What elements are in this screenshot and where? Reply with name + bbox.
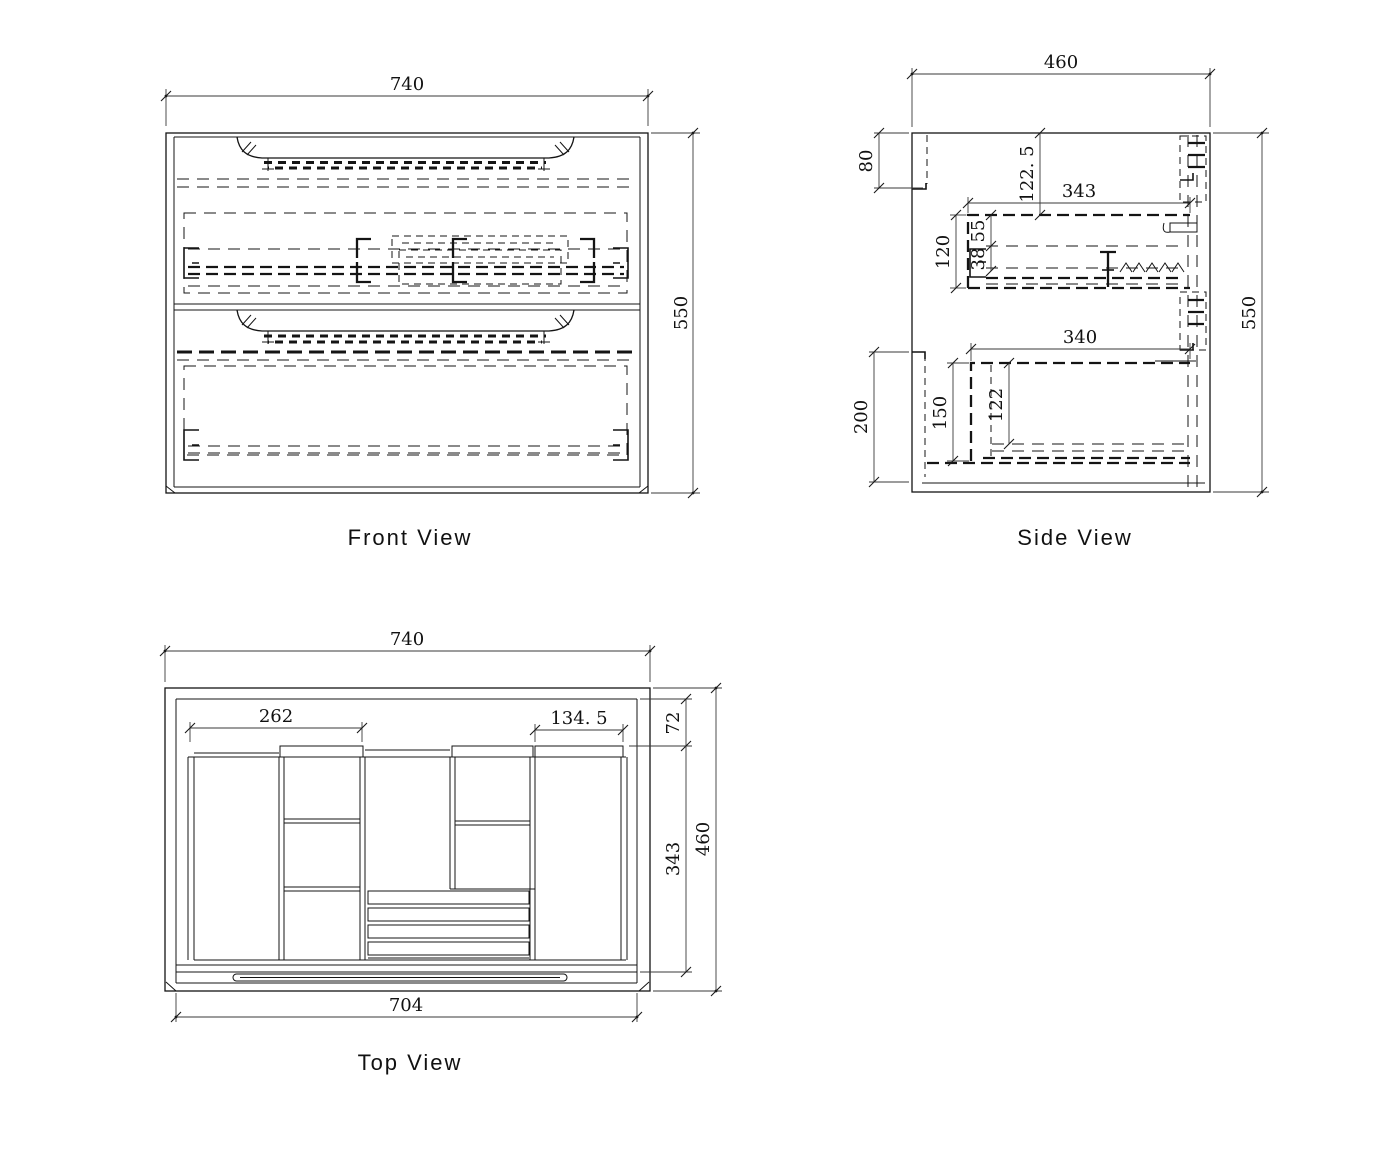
dim-top-left-span: 262 xyxy=(259,706,293,727)
dim-top-back-band: 72 xyxy=(663,712,684,735)
top-view-dimension-inner-depth: 343 xyxy=(640,746,692,977)
side-view-dimension-upper-segments: 55 38 xyxy=(968,210,996,276)
side-view-dimension-upper-depth: 343 xyxy=(963,181,1195,213)
front-view: 740 550 Front View xyxy=(161,74,700,550)
dim-side-bottom-bracket: 200 xyxy=(851,400,872,434)
dim-side-top-bracket: 80 xyxy=(856,150,877,173)
dim-top-right-span: 134. 5 xyxy=(550,708,607,729)
front-view-title: Front View xyxy=(348,525,473,550)
dim-top-width: 740 xyxy=(390,629,424,650)
dim-side-lower-height: 150 xyxy=(930,396,951,430)
side-view-dimension-bottom-bracket: 200 xyxy=(851,347,909,487)
front-view-top-drawer xyxy=(177,137,637,293)
dim-front-height: 550 xyxy=(671,296,692,330)
front-view-dimension-height: 550 xyxy=(651,128,700,498)
side-view-slide-clips xyxy=(1155,136,1206,361)
side-view-wall-brackets xyxy=(912,135,927,477)
dim-side-upper-seg1: 55 xyxy=(968,220,989,243)
dim-side-upper-height: 120 xyxy=(933,235,954,269)
front-view-dimension-width: 740 xyxy=(161,74,653,126)
side-view-dimension-lower-depth: 340 xyxy=(966,327,1195,361)
side-view-dimension-width: 460 xyxy=(907,52,1215,127)
side-view-dimension-height: 550 xyxy=(1213,128,1269,497)
top-view: 740 262 134. 5 72 343 xyxy=(160,629,722,1075)
top-view-dimension-inner-width: 704 xyxy=(171,993,642,1022)
dim-side-lower-inner: 122 xyxy=(986,388,1007,422)
side-view-dimension-top-bracket: 80 xyxy=(856,128,923,193)
side-view-upper-drawer-hidden xyxy=(968,215,1197,288)
top-view-dimension-back-band: 72 xyxy=(629,694,692,751)
dim-side-height: 550 xyxy=(1239,296,1260,330)
side-view-dimension-lower-height: 150 xyxy=(930,358,969,466)
cad-drawing-canvas: 740 550 Front View xyxy=(0,0,1400,1152)
side-view: 460 550 80 200 122. 5 xyxy=(851,52,1269,550)
top-view-dimension-right-span: 134. 5 xyxy=(530,708,628,742)
dim-top-inner-depth: 343 xyxy=(663,842,684,876)
dim-top-depth: 460 xyxy=(693,822,714,856)
dim-side-upper-depth: 343 xyxy=(1062,181,1096,202)
top-view-rack xyxy=(368,891,529,958)
dim-side-lower-depth: 340 xyxy=(1063,327,1097,348)
side-view-dimension-lower-inner: 122 xyxy=(986,358,1014,449)
top-view-dimension-left-span: 262 xyxy=(185,706,367,742)
side-view-lower-drawer-hidden xyxy=(927,363,1190,463)
side-view-dimension-top-inset: 122. 5 xyxy=(1017,128,1045,220)
top-view-title: Top View xyxy=(358,1050,463,1075)
dim-front-width: 740 xyxy=(390,74,424,95)
dim-side-width: 460 xyxy=(1044,52,1078,73)
front-view-bottom-drawer xyxy=(177,310,637,460)
top-view-compartments xyxy=(188,746,627,960)
front-view-hidden-fittings xyxy=(357,236,594,284)
dim-side-top-inset: 122. 5 xyxy=(1017,145,1038,202)
dim-top-inner-width: 704 xyxy=(389,995,423,1016)
side-view-dimension-upper-height: 120 xyxy=(933,210,966,293)
top-view-dimension-width: 740 xyxy=(160,629,655,682)
side-view-title: Side View xyxy=(1017,525,1132,550)
top-view-cabinet-outline xyxy=(165,688,650,991)
dim-side-upper-seg2: 38 xyxy=(968,248,989,271)
